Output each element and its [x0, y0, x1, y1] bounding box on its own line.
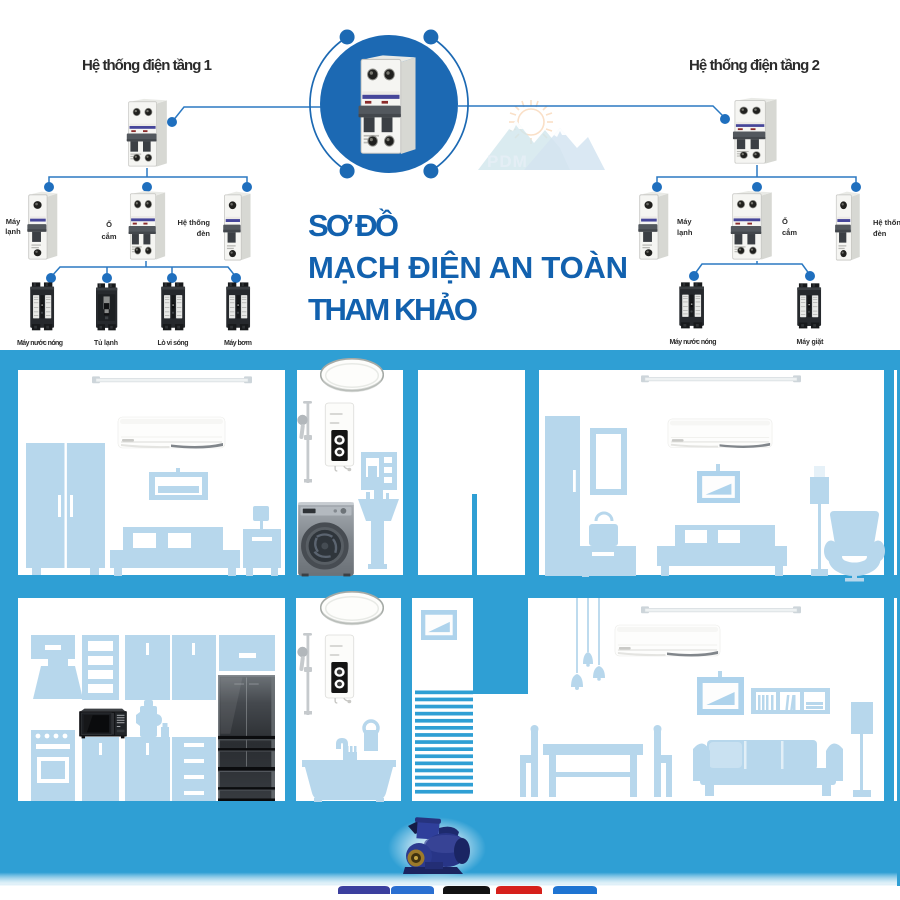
- svg-text:Máy: Máy: [677, 217, 692, 226]
- svg-text:lạnh: lạnh: [5, 227, 21, 236]
- svg-text:PDM: PDM: [487, 152, 528, 171]
- svg-text:Ổ: Ổ: [782, 217, 788, 226]
- svg-text:Hệ thống: Hệ thống: [873, 218, 900, 227]
- svg-text:đèn: đèn: [873, 229, 887, 238]
- svg-text:cắm: cắm: [782, 228, 797, 237]
- svg-text:Lò vi sóng: Lò vi sóng: [158, 340, 189, 347]
- svg-text:Ổ: Ổ: [106, 220, 112, 229]
- svg-text:Máy giặt: Máy giặt: [797, 339, 825, 346]
- svg-text:THAM KHẢO: THAM KHẢO: [308, 292, 478, 327]
- svg-text:Hệ thống điện tầng 1: Hệ thống điện tầng 1: [82, 57, 212, 74]
- svg-text:cắm: cắm: [101, 232, 116, 241]
- svg-text:Hệ thống điện tầng 2: Hệ thống điện tầng 2: [689, 57, 820, 74]
- svg-text:MẠCH ĐIỆN AN TOÀN: MẠCH ĐIỆN AN TOÀN: [308, 249, 628, 285]
- svg-text:SƠ ĐỒ: SƠ ĐỒ: [308, 207, 399, 243]
- svg-text:Máy bơm: Máy bơm: [224, 340, 252, 347]
- svg-text:Máy: Máy: [6, 217, 21, 226]
- svg-text:Tủ lạnh: Tủ lạnh: [94, 340, 118, 347]
- svg-text:đèn: đèn: [197, 229, 211, 238]
- svg-text:Máy nước nóng: Máy nước nóng: [17, 340, 63, 347]
- svg-text:Máy nước nóng: Máy nước nóng: [670, 339, 717, 346]
- svg-text:lạnh: lạnh: [677, 228, 693, 237]
- svg-text:Hệ thống: Hệ thống: [178, 218, 211, 227]
